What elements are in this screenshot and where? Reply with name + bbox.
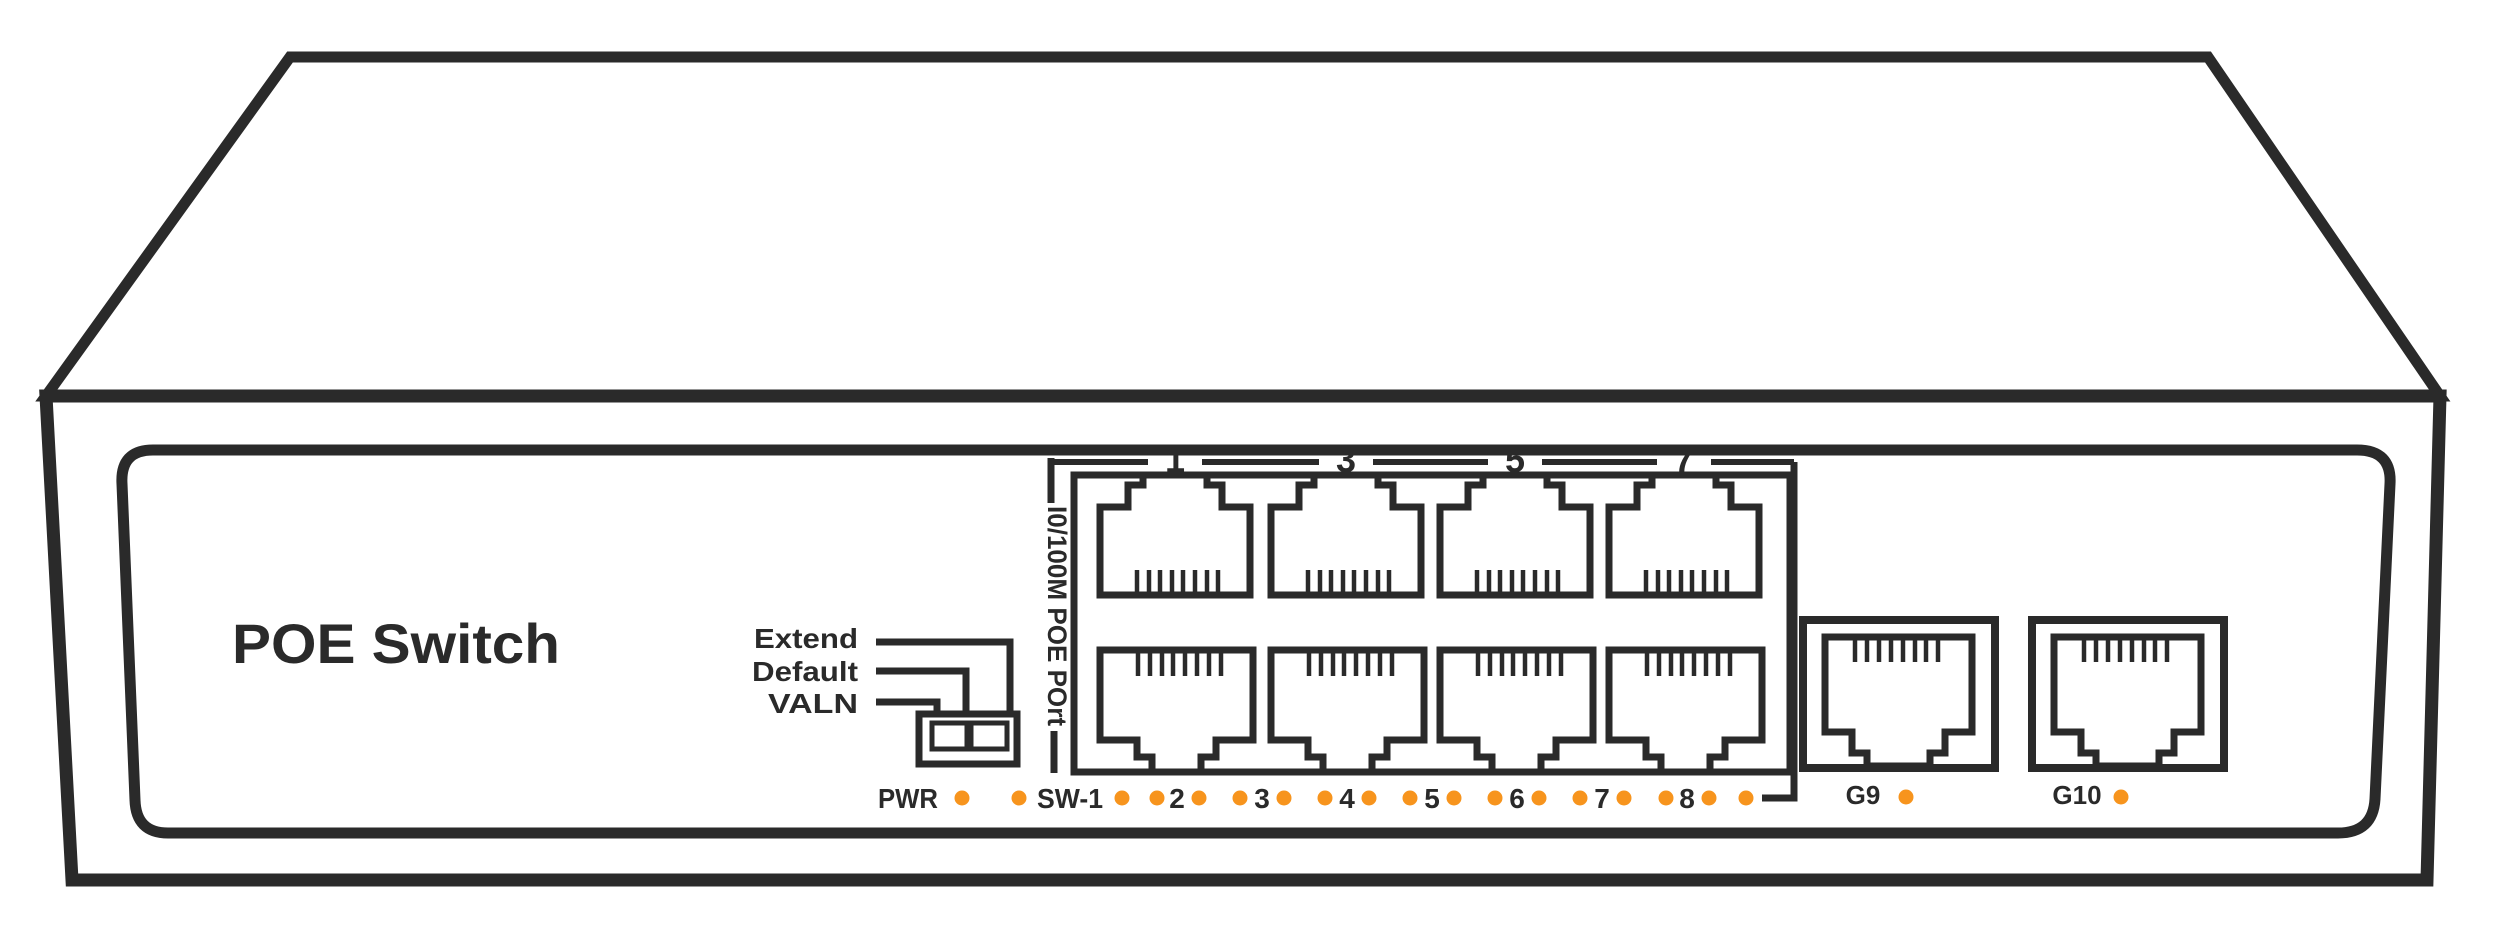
led-indicator <box>1233 791 1248 806</box>
led-indicator <box>2114 790 2129 805</box>
led-indicator <box>1702 791 1717 806</box>
port-number-5: 5 <box>1505 439 1525 480</box>
led-indicator <box>1012 791 1027 806</box>
port-group-label: I0/100M POE POrt <box>1042 506 1072 726</box>
poe-switch-diagram: POE Switch Extend Default VALN I0/100M P… <box>0 0 2495 928</box>
port-number-7: 7 <box>1674 439 1694 480</box>
led-label-sw-1: SW-1 <box>1037 783 1103 814</box>
led-label-6: 6 <box>1509 783 1525 814</box>
led-indicator <box>1362 791 1377 806</box>
led-label-2: 2 <box>1169 783 1185 814</box>
led-indicator <box>1115 791 1130 806</box>
led-indicator <box>1192 791 1207 806</box>
dip-switch-position-2 <box>971 723 1007 749</box>
led-indicator <box>1532 791 1547 806</box>
brand-title: POE Switch <box>232 612 560 675</box>
dip-switch-position-1 <box>932 723 967 749</box>
led-label-3: 3 <box>1254 783 1270 814</box>
port-number-1: 1 <box>1165 439 1185 480</box>
led-indicator <box>955 791 970 806</box>
uplink-label-g10: G10 <box>2052 780 2101 810</box>
led-indicator <box>1617 791 1632 806</box>
uplink-label-g9: G9 <box>1846 780 1881 810</box>
led-indicator <box>1277 791 1292 806</box>
led-label-pwr: PWR <box>878 783 938 814</box>
chassis-top-face <box>46 57 2440 396</box>
led-indicator <box>1739 791 1754 806</box>
led-indicator <box>1899 790 1914 805</box>
led-indicator <box>1150 791 1165 806</box>
diagram-canvas: POE Switch Extend Default VALN I0/100M P… <box>0 0 2495 928</box>
led-indicator <box>1488 791 1503 806</box>
led-indicator <box>1573 791 1588 806</box>
led-indicator <box>1659 791 1674 806</box>
led-label-5: 5 <box>1424 783 1440 814</box>
dip-label-default: Default <box>752 656 858 687</box>
led-indicator <box>1403 791 1418 806</box>
led-indicator <box>1447 791 1462 806</box>
led-label-4: 4 <box>1339 783 1355 814</box>
led-label-8: 8 <box>1679 783 1695 814</box>
dip-label-valn: VALN <box>768 688 858 719</box>
dip-label-extend: Extend <box>754 623 858 654</box>
led-label-7: 7 <box>1594 783 1610 814</box>
port-number-3: 3 <box>1336 439 1356 480</box>
led-indicator <box>1318 791 1333 806</box>
